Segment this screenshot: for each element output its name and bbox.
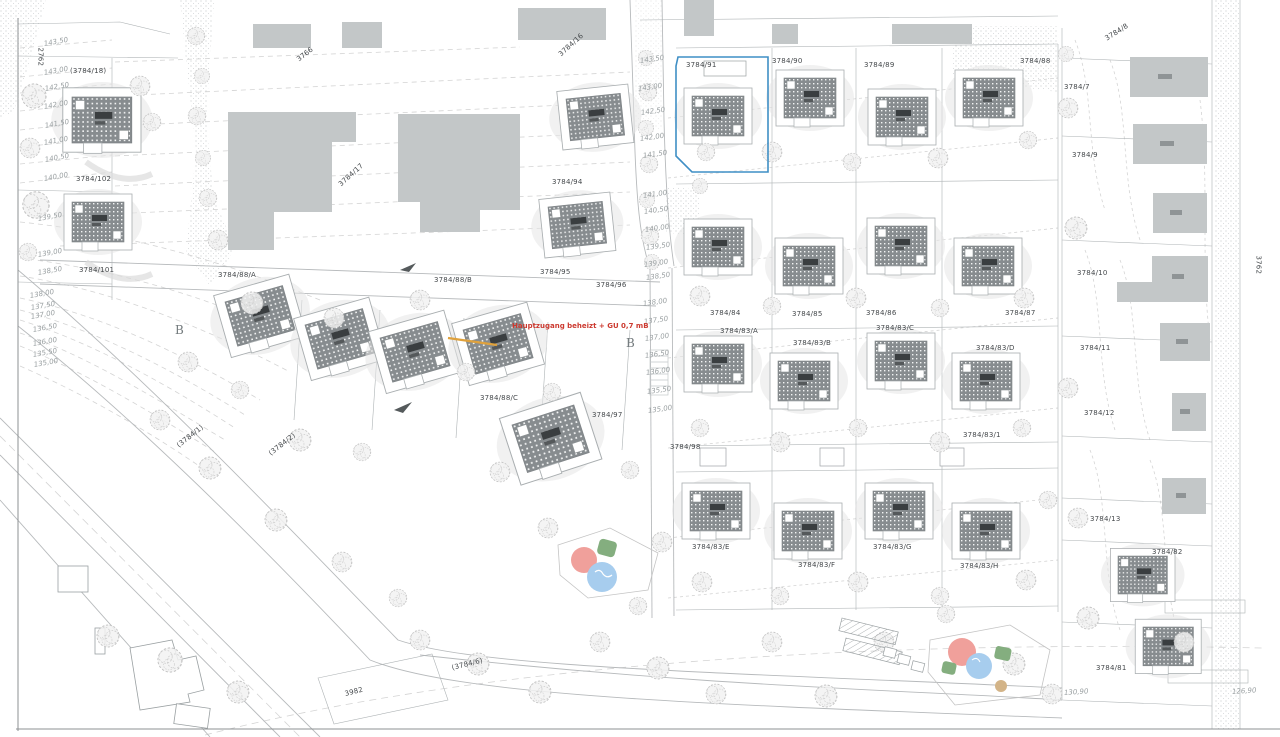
- play-equipment-green: [994, 645, 1012, 661]
- playground-west: [558, 528, 658, 598]
- steps: [650, 350, 668, 395]
- playground-south: [928, 625, 1050, 705]
- garages: [700, 448, 964, 466]
- site-plan: (3784/18)276237663784/163784/173784/1023…: [0, 0, 1280, 737]
- site-plan-drawing: [0, 0, 1280, 737]
- play-equipment-blue: [966, 653, 992, 679]
- play-equipment-green: [596, 538, 618, 558]
- new-houses: [51, 65, 1211, 678]
- play-equipment-tan: [995, 680, 1007, 692]
- play-equipment-blue: [587, 562, 617, 592]
